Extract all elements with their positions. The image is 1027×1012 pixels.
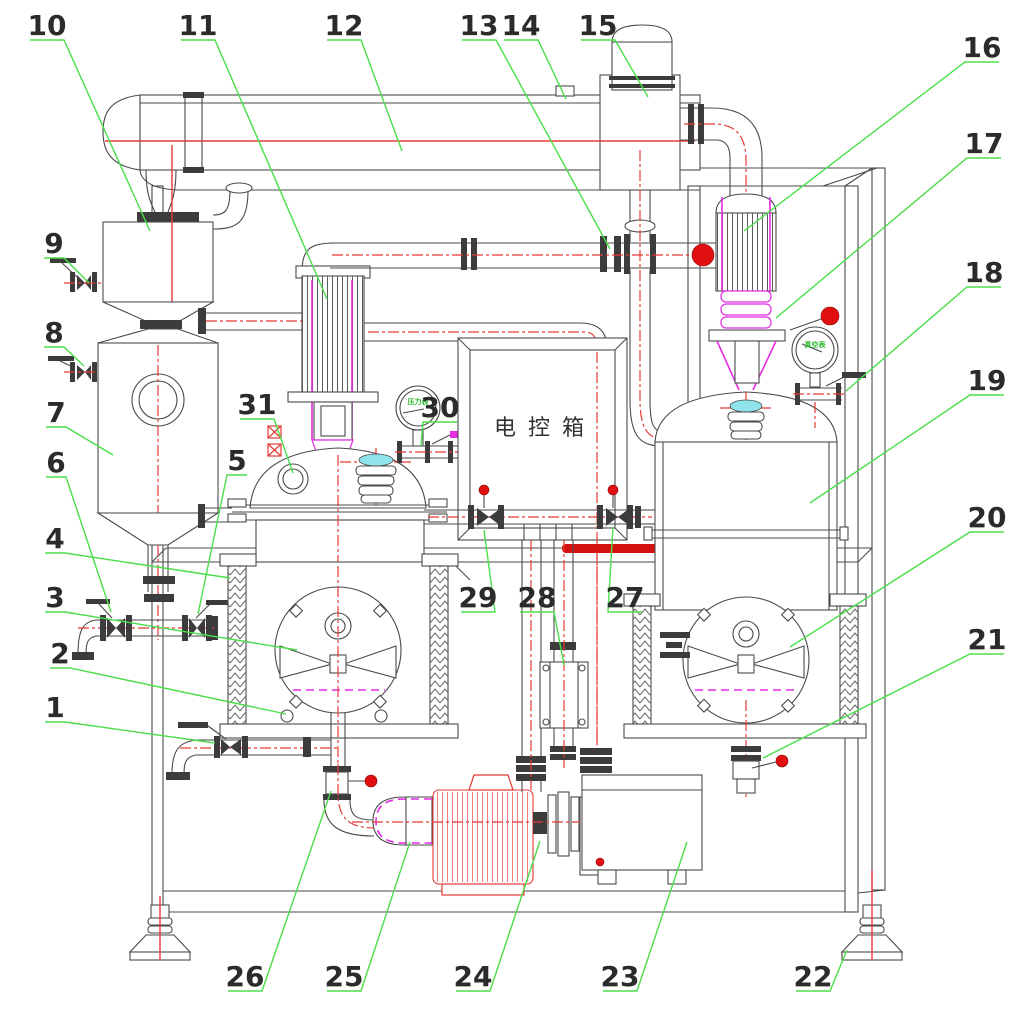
- receiver-vessel-19: [635, 392, 848, 610]
- thermowell-nub-14: [556, 86, 574, 96]
- callout-26: 26: [226, 960, 265, 993]
- callout-13: 13: [460, 9, 499, 42]
- callout-30: 30: [421, 391, 460, 424]
- callout-14: 14: [502, 9, 541, 42]
- callout-1: 1: [45, 691, 64, 724]
- callout-27: 27: [606, 581, 645, 614]
- vacuum-unit-23: [580, 748, 702, 884]
- leveling-foot-left: [130, 896, 190, 960]
- leader-line-3: [45, 612, 297, 650]
- callout-18: 18: [965, 256, 1004, 289]
- callout-2: 2: [50, 637, 69, 670]
- callout-4: 4: [45, 522, 64, 555]
- drain-manifold-7: [72, 599, 230, 660]
- control-box-label: 电控箱: [494, 416, 596, 441]
- leader-line-17: [776, 158, 1001, 318]
- callout-11: 11: [179, 9, 218, 42]
- schematic-svg: 压力表 电控箱: [0, 0, 1027, 1012]
- callout-17: 17: [965, 127, 1004, 160]
- red-ball-valve-16: [821, 307, 839, 325]
- valve-26: [323, 764, 377, 836]
- callout-12: 12: [325, 9, 364, 42]
- leader-line-4: [45, 553, 230, 578]
- finned-unit-11: [288, 243, 378, 454]
- callout-28: 28: [518, 581, 557, 614]
- callout-7: 7: [46, 396, 65, 429]
- mini-valve-red: [268, 426, 281, 456]
- red-ball-valve-vapor: [692, 244, 714, 266]
- callout-15: 15: [579, 9, 618, 42]
- valve-9: [50, 258, 103, 292]
- inline-filter-25: [373, 797, 432, 845]
- callout-24: 24: [454, 960, 493, 993]
- condenser-downcomers: [137, 170, 252, 229]
- callout-16: 16: [963, 31, 1002, 64]
- callout-5: 5: [227, 444, 246, 477]
- valve-8: [48, 356, 98, 382]
- drop-pipes: [516, 540, 588, 792]
- callout-22: 22: [794, 960, 833, 993]
- callout-10: 10: [28, 9, 67, 42]
- callout-29: 29: [459, 581, 498, 614]
- callout-6: 6: [46, 446, 65, 479]
- gauge-right-label: 真空表: [805, 340, 827, 349]
- callout-20: 20: [968, 501, 1007, 534]
- callout-3: 3: [45, 581, 64, 614]
- condensate-vessel-7: [98, 343, 218, 640]
- callout-25: 25: [325, 960, 364, 993]
- leveling-foot-right: [842, 870, 902, 960]
- bolt-hole-2: [281, 710, 293, 722]
- engineering-drawing-page: 压力表 电控箱: [0, 0, 1027, 1012]
- vapor-line: [330, 234, 716, 274]
- heating-bath-left: [220, 554, 458, 792]
- heating-bath-right: [624, 594, 866, 800]
- leader-line-19: [810, 395, 1004, 503]
- callout-9: 9: [44, 227, 63, 260]
- leader-line-2: [50, 668, 286, 714]
- callout-23: 23: [601, 960, 640, 993]
- callout-21: 21: [968, 623, 1007, 656]
- callout-19: 19: [968, 364, 1007, 397]
- leader-line-28: [520, 612, 564, 665]
- callout-31: 31: [238, 388, 277, 421]
- callout-8: 8: [44, 316, 63, 349]
- drain-valve-21: [733, 761, 759, 779]
